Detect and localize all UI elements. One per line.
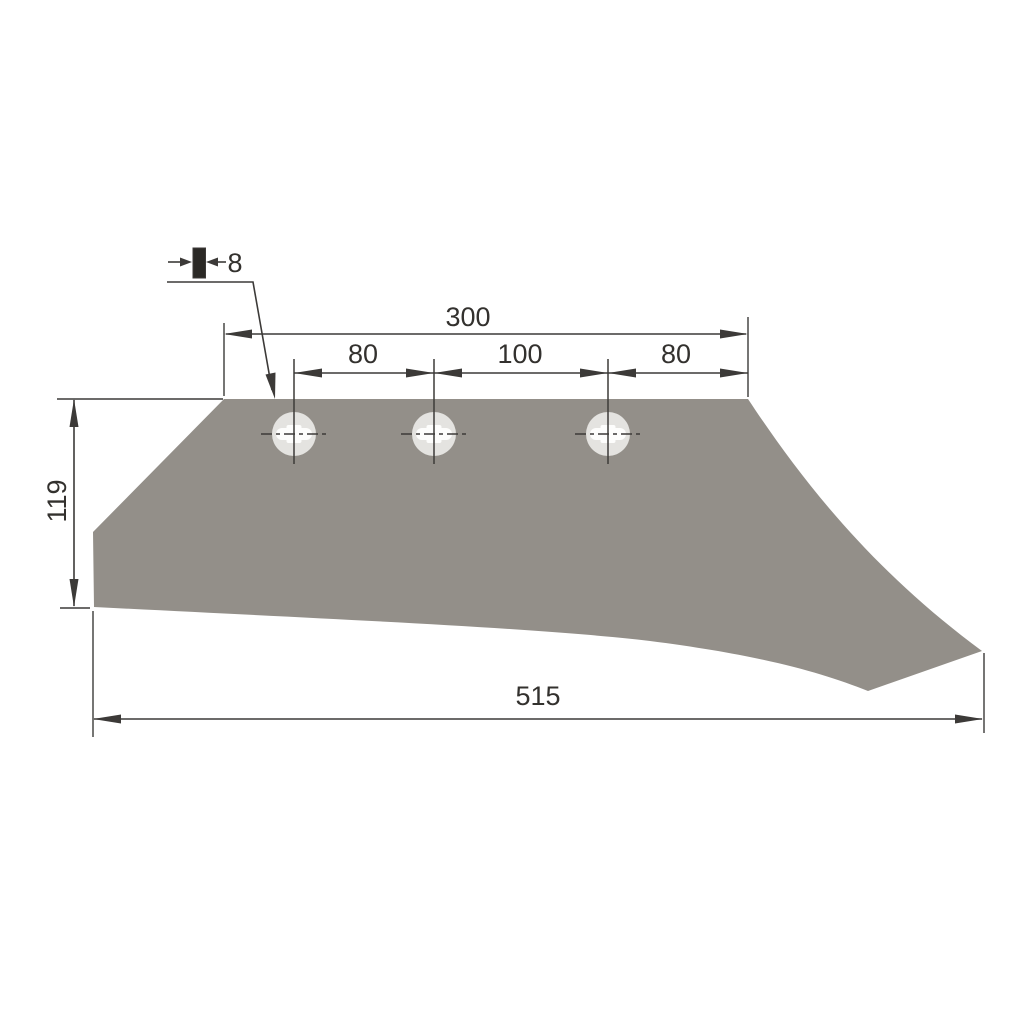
arrowhead-100-left	[434, 369, 462, 378]
technical-drawing-canvas: 300 80 100 80 119 515 8	[0, 0, 1024, 1024]
arrowhead-119-bottom	[70, 579, 79, 607]
plowshare-drawing: 300 80 100 80 119 515 8	[0, 0, 1024, 1024]
arrowhead-80L-left	[294, 369, 322, 378]
arrowhead-thickness-right	[206, 258, 218, 267]
dim-label-left-height: 119	[42, 479, 72, 522]
dim-label-pitch-right: 80	[661, 339, 691, 369]
arrowhead-100-right	[580, 369, 608, 378]
arrowhead-80L-right	[406, 369, 434, 378]
arrowhead-515-left	[93, 715, 121, 724]
thickness-section-bar	[193, 248, 206, 278]
arrowhead-300-left	[224, 330, 252, 339]
arrowhead-80R-right	[720, 369, 748, 378]
dim-label-thickness: 8	[227, 248, 242, 278]
arrowhead-119-top	[70, 399, 79, 427]
thickness-leader-line	[167, 282, 272, 390]
plate-outline	[93, 399, 982, 691]
dim-label-bottom-total: 515	[515, 681, 560, 711]
dim-label-pitch-center: 100	[497, 339, 542, 369]
arrowhead-thickness-left	[180, 258, 192, 267]
dim-label-pitch-left: 80	[348, 339, 378, 369]
arrowhead-80R-left	[608, 369, 636, 378]
arrowhead-300-right	[720, 330, 748, 339]
arrowhead-thickness-leader	[266, 373, 276, 400]
arrowhead-515-right	[955, 715, 983, 724]
dim-label-top-total: 300	[445, 302, 490, 332]
